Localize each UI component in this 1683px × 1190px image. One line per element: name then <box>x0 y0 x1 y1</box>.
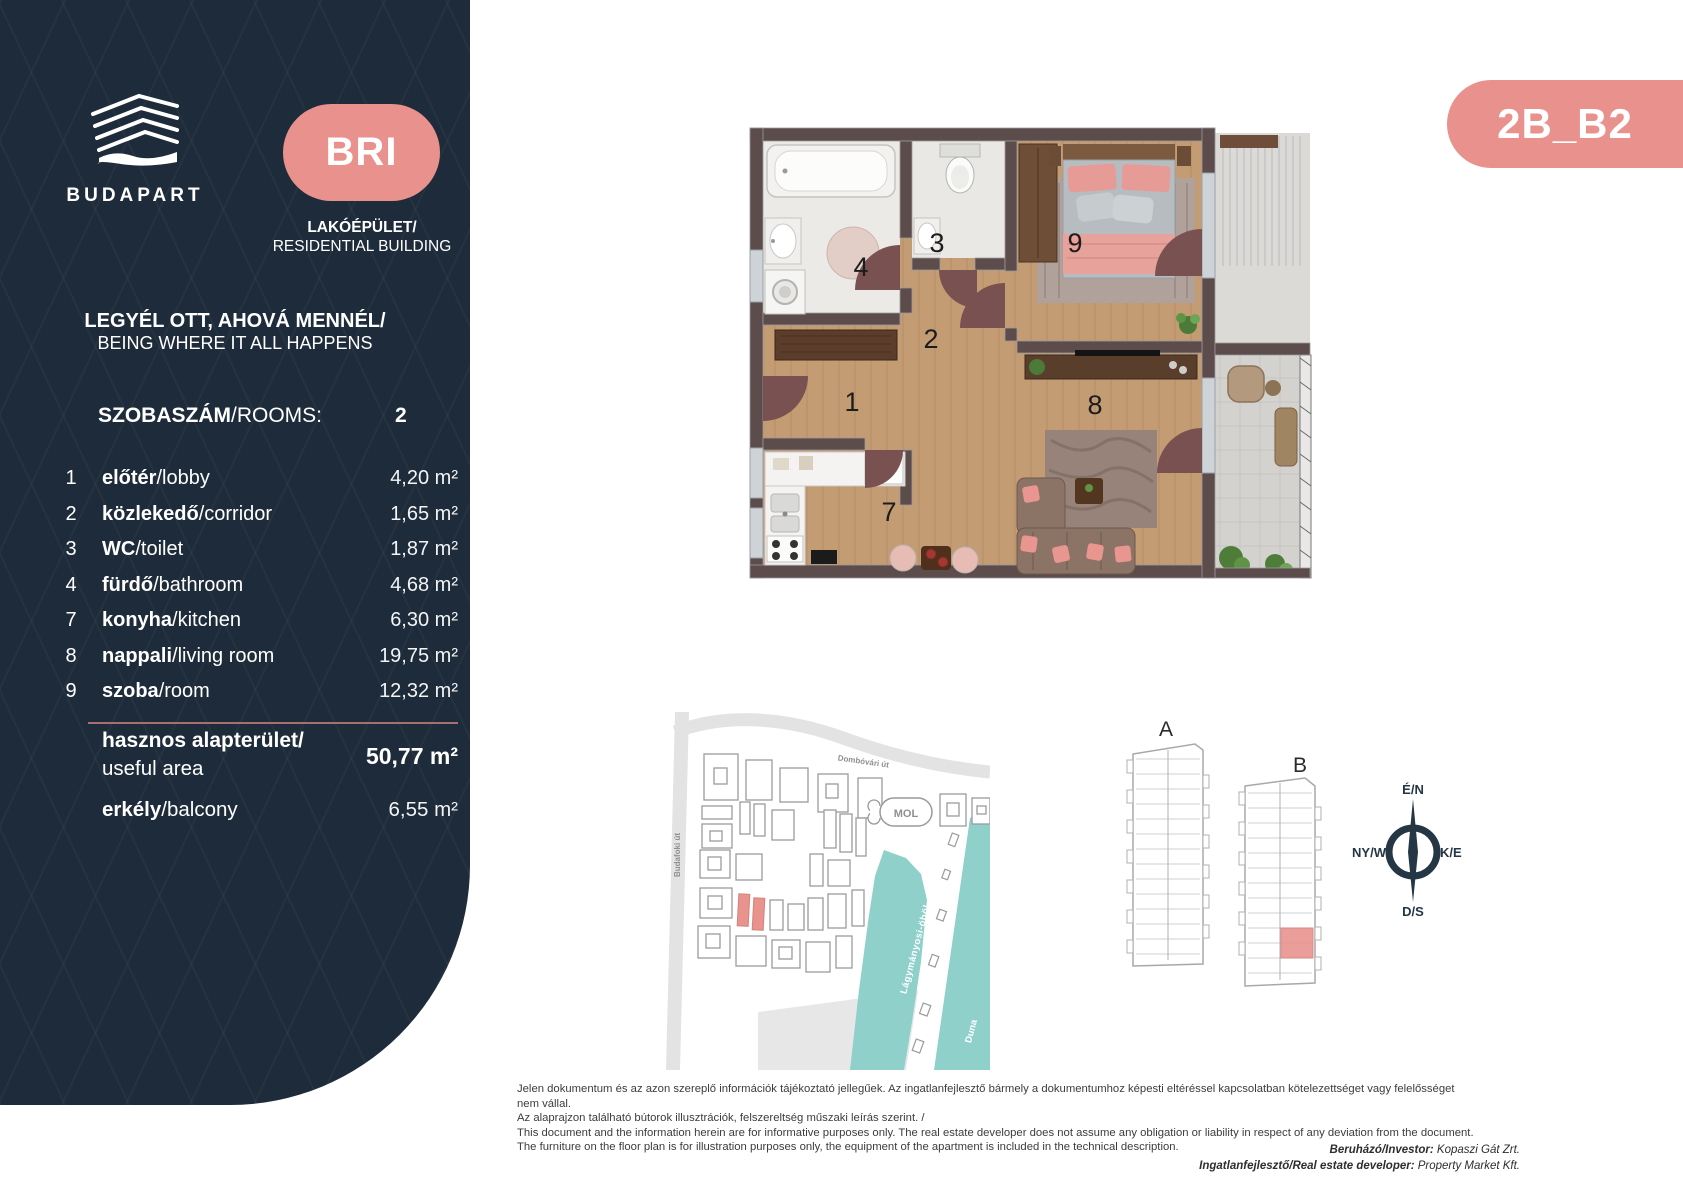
room-name-hu: konyha <box>102 609 172 631</box>
total-label-hu: hasznos alapterület/ <box>102 729 304 753</box>
building-a-plan <box>1127 744 1209 966</box>
rooms-label: SZOBASZÁM/ROOMS: <box>98 404 322 428</box>
highlighted-unit <box>1281 928 1313 958</box>
balcony-name-hu: erkély <box>102 798 161 821</box>
building-type-hu: LAKÓÉPÜLET/ <box>262 218 462 237</box>
room-number-wc: 3 <box>929 228 944 258</box>
hallway-cabinet <box>775 330 897 360</box>
developer-line: Ingatlanfejlesztő/Real estate developer:… <box>1199 1158 1520 1174</box>
total-area-value: 50,77 m² <box>366 743 458 770</box>
compass-west-label: NY/W <box>1352 845 1387 860</box>
table-row: 3 WC/toilet 1,87 m² <box>0 532 470 568</box>
room-name: konyha/kitchen <box>102 603 241 639</box>
room-number-corridor: 2 <box>923 324 938 354</box>
building-b-plan <box>1239 778 1321 986</box>
unit-code-label: 2B_B2 <box>1497 100 1633 148</box>
room-number-living: 8 <box>1087 390 1102 420</box>
disclaimer-line-3: This document and the information herein… <box>517 1126 1477 1141</box>
building-type-en: RESIDENTIAL BUILDING <box>262 237 462 256</box>
building-type: LAKÓÉPÜLET/ RESIDENTIAL BUILDING <box>262 218 462 256</box>
table-row: 1 előtér/lobby 4,20 m² <box>0 461 470 497</box>
logo-wave <box>98 152 177 166</box>
room-area: 1,65 m² <box>390 497 458 533</box>
dining-set <box>890 545 978 573</box>
room-name: közlekedő/corridor <box>102 497 272 533</box>
balcony-bench <box>1275 408 1297 466</box>
washing-machine <box>765 270 805 314</box>
room-name-en: /kitchen <box>172 609 241 631</box>
tv <box>1075 350 1160 356</box>
room-number: 8 <box>58 639 84 675</box>
table-row: 9 szoba/room 12,32 m² <box>0 674 470 710</box>
investor-value: Kopaszi Gát Zrt. <box>1434 1144 1520 1156</box>
rooms-label-hu: SZOBASZÁM <box>98 404 231 427</box>
balcony-name: erkély/balcony <box>102 797 238 823</box>
map-street-vertical-label: Budafoki út <box>673 833 682 877</box>
room-name: szoba/room <box>102 674 210 710</box>
unit-code-badge: 2B_B2 <box>1447 80 1683 168</box>
balcony <box>1215 355 1311 578</box>
rooms-value: 2 <box>395 404 407 428</box>
room-number-room: 9 <box>1067 228 1082 258</box>
room-name-en: /bathroom <box>153 574 243 596</box>
apartment-floorplan: ❄ 4 3 9 2 <box>715 118 1315 593</box>
brand-name: BUDAPART <box>55 185 215 207</box>
room-area-table: 1 előtér/lobby 4,20 m² 2 közlekedő/corri… <box>0 461 470 710</box>
building-badge-label: BRI <box>326 130 398 175</box>
table-row: 2 közlekedő/corridor 1,65 m² <box>0 497 470 533</box>
compass-north-label: É/N <box>1402 782 1424 797</box>
room-number: 2 <box>58 497 84 533</box>
map-mol-station: MOL <box>868 798 932 826</box>
compass-south-label: D/S <box>1402 904 1424 919</box>
room-name: előtér/lobby <box>102 461 210 497</box>
location-map: MOL Budafoki út Dombóvári út Lágymányosi… <box>618 660 990 1070</box>
sideboard-plant <box>1029 359 1045 375</box>
room-name-en: /living room <box>172 645 274 667</box>
investor-label: Beruházó/Investor: <box>1330 1144 1434 1156</box>
building-key-plans: A B <box>1100 680 1360 992</box>
room-name-en: /room <box>159 680 210 702</box>
compass-needle <box>1408 799 1418 902</box>
stove <box>767 536 803 562</box>
table-row: 7 konyha/kitchen 6,30 m² <box>0 603 470 639</box>
bathtub <box>767 145 895 197</box>
compass-east-label: K/E <box>1440 845 1462 860</box>
map-buildings-right <box>940 794 990 826</box>
room-name-hu: előtér <box>102 467 156 489</box>
room-name: fürdő/bathroom <box>102 568 243 604</box>
investor-line: Beruházó/Investor: Kopaszi Gát Zrt. <box>1199 1142 1520 1158</box>
room-number-bath: 4 <box>853 252 868 282</box>
total-label-en: useful area <box>102 757 203 781</box>
room-area: 6,30 m² <box>390 603 458 639</box>
room-name-hu: szoba <box>102 680 159 702</box>
rooms-label-en: /ROOMS: <box>231 404 322 427</box>
room-name-hu: WC <box>102 538 135 560</box>
room-number: 3 <box>58 532 84 568</box>
room-area: 1,87 m² <box>390 532 458 568</box>
room-name-en: /toilet <box>135 538 183 560</box>
slogan-hu: LEGYÉL OTT, AHOVÁ MENNÉL/ <box>68 310 402 332</box>
room-name-hu: fürdő <box>102 574 153 596</box>
total-divider <box>88 722 458 724</box>
balcony-railing <box>1300 355 1311 578</box>
budapart-logo: BUDAPART <box>55 92 215 207</box>
balcony-table <box>1265 380 1281 396</box>
building-b-label: B <box>1293 754 1307 777</box>
nightstand <box>1049 146 1061 166</box>
nightstand <box>1177 146 1191 166</box>
table-row: 4 fürdő/bathroom 4,68 m² <box>0 568 470 604</box>
room-number: 4 <box>58 568 84 604</box>
room-area: 4,20 m² <box>390 461 458 497</box>
credits: Beruházó/Investor: Kopaszi Gát Zrt. Inga… <box>1199 1142 1520 1174</box>
neighbor-terrace <box>1215 133 1310 343</box>
compass-icon: É/N NY/W K/E D/S <box>1338 772 1488 922</box>
building-badge: BRI <box>283 104 440 201</box>
sidebar-panel: BUDAPART BRI LAKÓÉPÜLET/ RESIDENTIAL BUI… <box>0 0 470 1105</box>
room-name-en: /lobby <box>156 467 209 489</box>
balcony-area: 6,55 m² <box>389 797 459 823</box>
room-name-en: /corridor <box>199 503 272 525</box>
building-a-label: A <box>1159 718 1173 741</box>
room-number-lobby: 1 <box>844 387 859 417</box>
room-name-hu: nappali <box>102 645 172 667</box>
room-number-kitchen: 7 <box>881 497 896 527</box>
room-name: WC/toilet <box>102 532 183 568</box>
room-area: 12,32 m² <box>379 674 458 710</box>
kitchen-mat <box>811 550 837 564</box>
slogan-en: BEING WHERE IT ALL HAPPENS <box>68 332 402 354</box>
room-number: 1 <box>58 461 84 497</box>
bathroom-sink <box>765 218 801 264</box>
room-number: 9 <box>58 674 84 710</box>
disclaimer-line-2: Az alaprajzon található bútorok illusztr… <box>517 1111 1477 1126</box>
developer-value: Property Market Kft. <box>1415 1160 1520 1172</box>
balcony-name-en: /balcony <box>161 798 237 821</box>
room-area: 4,68 m² <box>390 568 458 604</box>
room-number: 7 <box>58 603 84 639</box>
balcony-chair <box>1228 366 1264 402</box>
budapart-logo-icon <box>87 92 183 168</box>
room-name: nappali/living room <box>102 639 274 675</box>
coffee-table <box>1075 478 1103 504</box>
disclaimer-line-1: Jelen dokumentum és az azon szereplő inf… <box>517 1082 1477 1111</box>
table-row: 8 nappali/living room 19,75 m² <box>0 639 470 675</box>
room-name-hu: közlekedő <box>102 503 199 525</box>
map-mol-label: MOL <box>894 808 919 820</box>
room-area: 19,75 m² <box>379 639 458 675</box>
developer-label: Ingatlanfejlesztő/Real estate developer: <box>1199 1160 1414 1172</box>
slogan: LEGYÉL OTT, AHOVÁ MENNÉL/ BEING WHERE IT… <box>68 310 402 354</box>
